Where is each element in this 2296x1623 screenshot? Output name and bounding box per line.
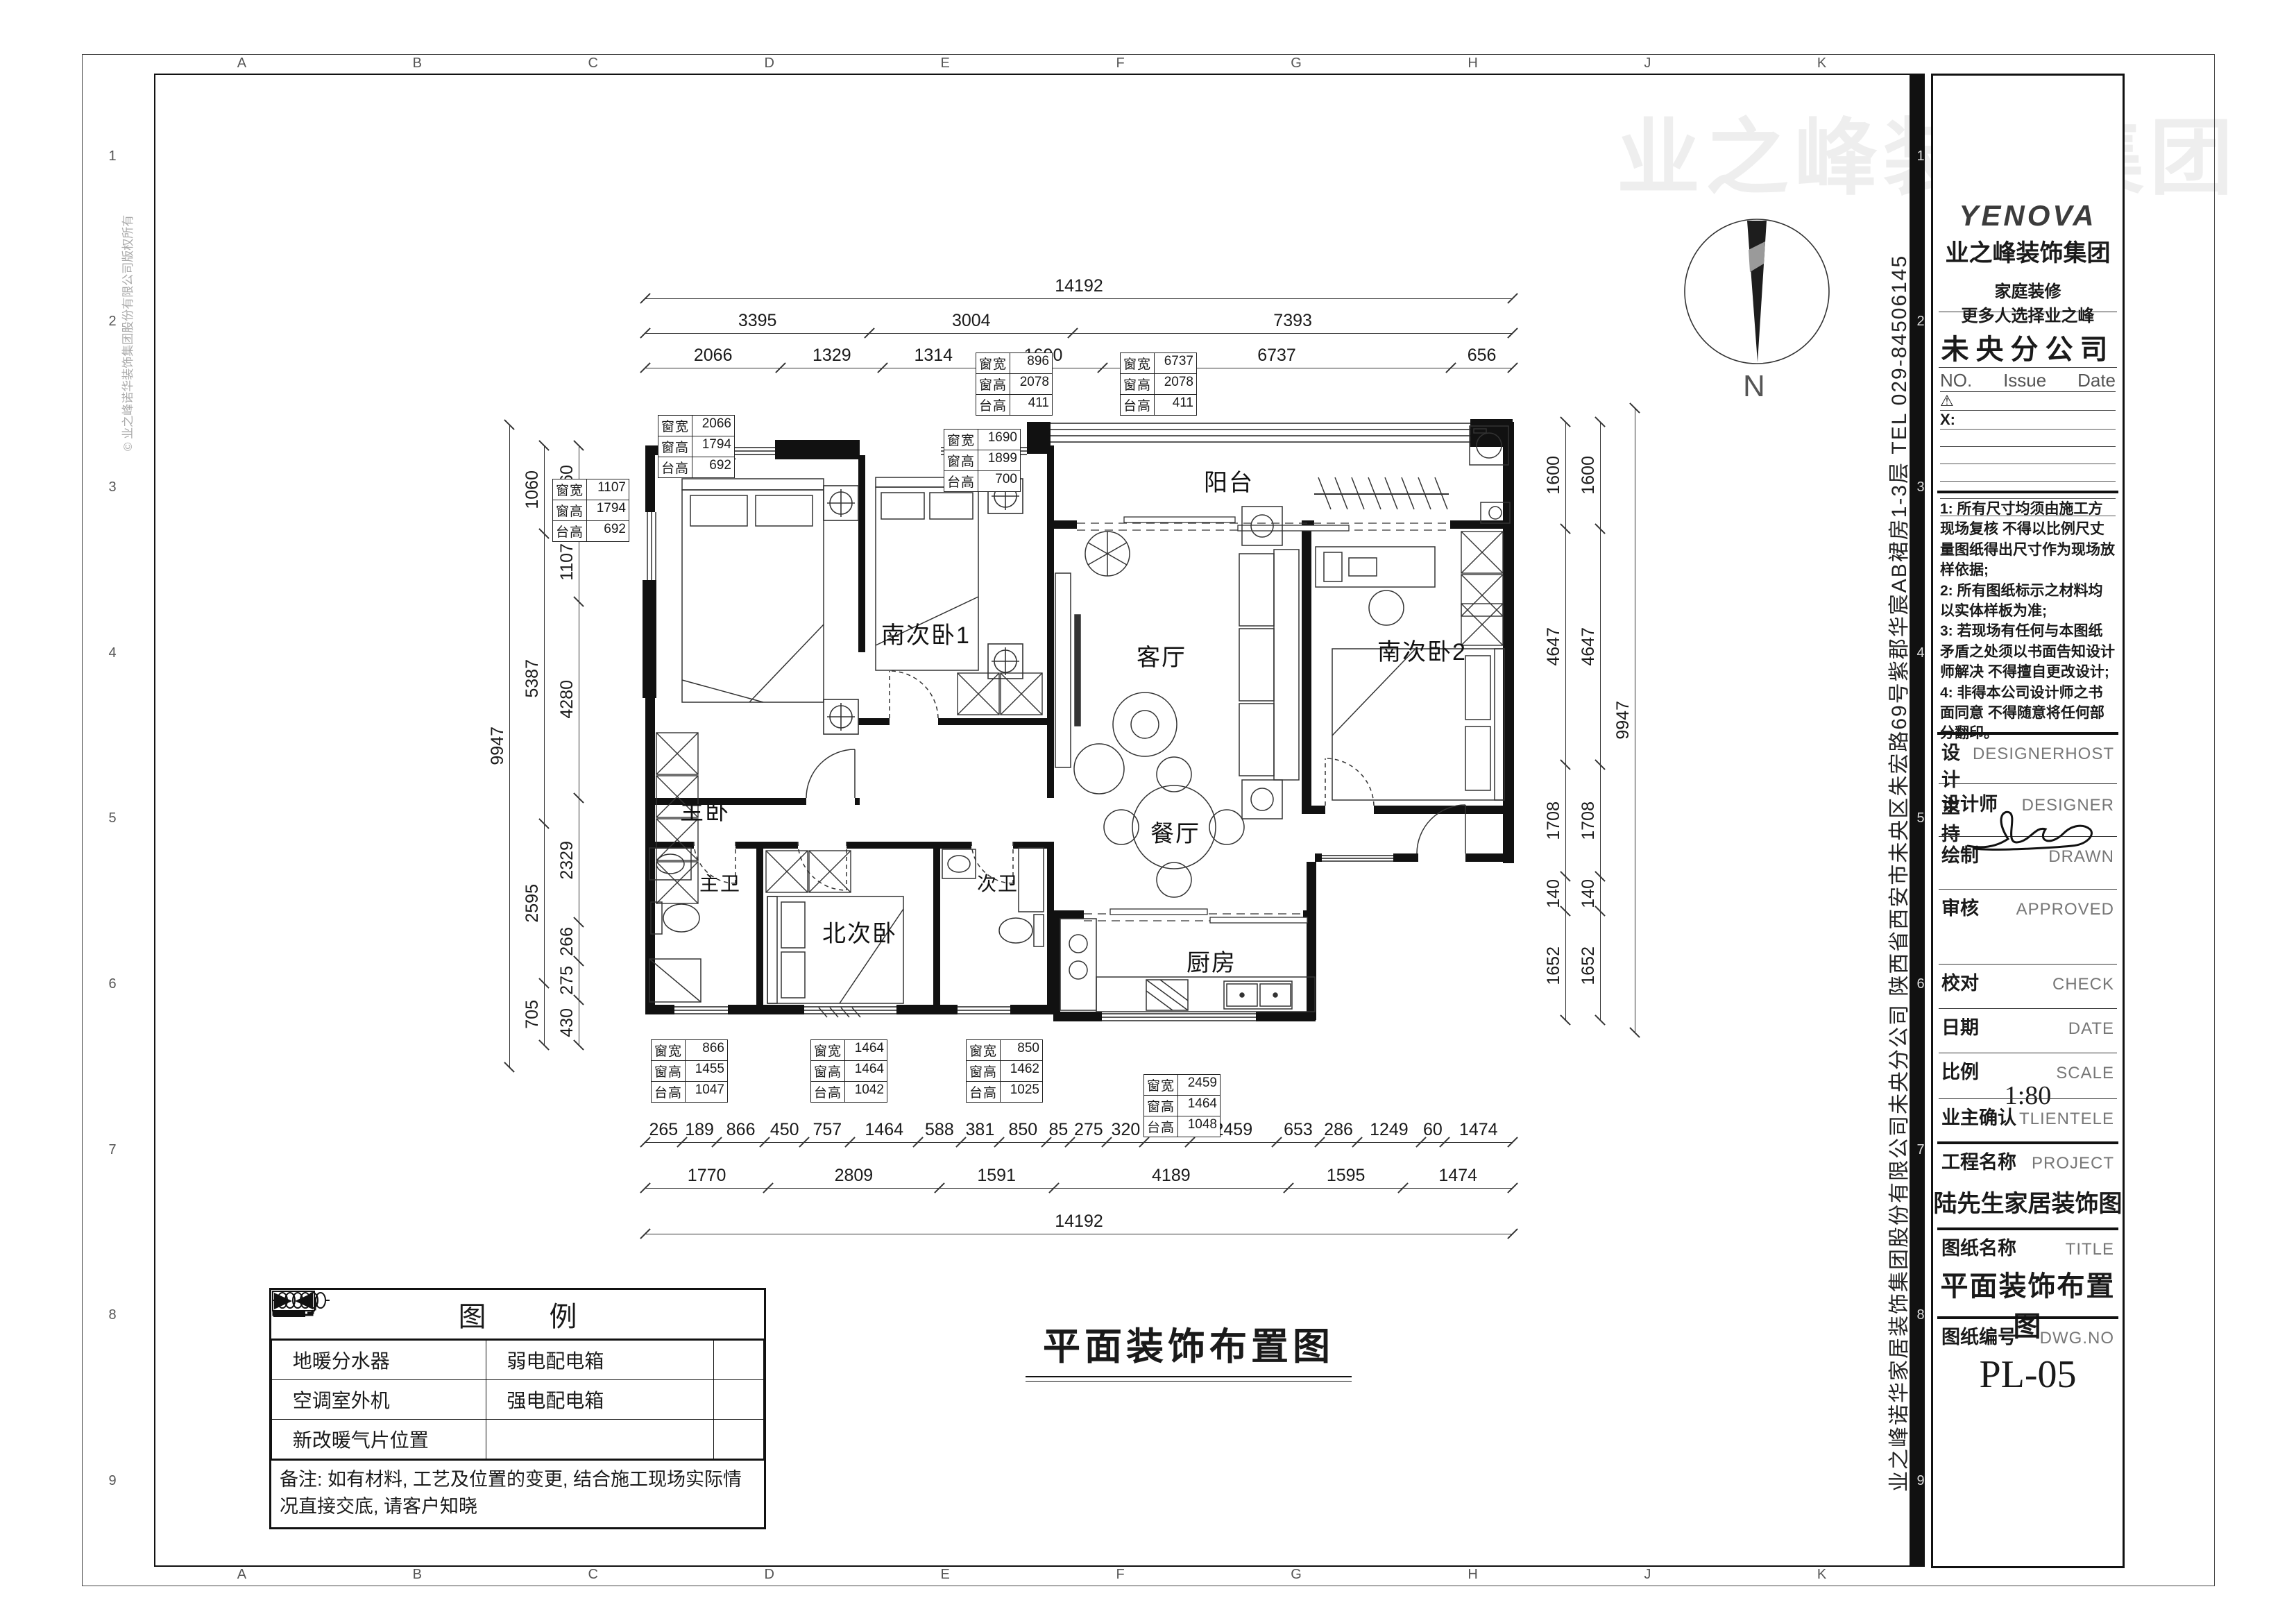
north-compass: [1685, 219, 1829, 364]
window-table-9: 窗宽2459窗高1464台高1048: [1143, 1074, 1221, 1137]
legend-item-label: 弱电配电箱: [507, 1350, 604, 1372]
room-label-north-bed: 北次卧: [822, 915, 897, 949]
sliding-doors: [1077, 517, 1450, 923]
legend-item-label: 地暖分水器: [293, 1350, 390, 1372]
furniture: [649, 426, 1510, 1017]
room-label-master-bath: 主卫: [699, 869, 741, 897]
legend-box: 图 例 地暖分水器 弱电配电箱: [269, 1288, 766, 1529]
legend-item-label: 空调室外机: [293, 1390, 390, 1411]
grid-numbers-right: 123456789: [1912, 74, 1929, 1564]
room-label-south2: 南次卧2: [1377, 633, 1467, 667]
window-table-5: 窗宽1690窗高1899台高700: [944, 429, 1021, 492]
room-label-south1: 南次卧1: [881, 616, 971, 650]
legend-title: 图 例: [271, 1290, 764, 1340]
window-table-6: 窗宽866窗高1455台高1047: [651, 1039, 728, 1103]
room-label-balcony: 阳台: [1204, 464, 1254, 498]
drawing-sheet: 业之峰装饰集团 ABCDEFGHJK ABCDEFGHJK 123456789 …: [0, 0, 2296, 1623]
window-table-7: 窗宽1464窗高1464台高1042: [810, 1039, 887, 1103]
room-label-living: 客厅: [1137, 638, 1187, 672]
window-table-1: 窗宽2066窗高1794台高692: [658, 415, 735, 478]
window-table-8: 窗宽850窗高1462台高1025: [966, 1039, 1043, 1103]
drawing-title: 平面装饰布置图: [1026, 1316, 1352, 1382]
designer-signature: [1954, 806, 2107, 854]
window-table-4: 窗宽6737窗高2078台高411: [1120, 352, 1197, 416]
compass-n-label: N: [1743, 369, 1765, 404]
room-label-second-bath: 次卫: [977, 869, 1019, 897]
title-underline: [1026, 1376, 1352, 1382]
window-table-2: 窗宽1107窗高1794台高692: [552, 479, 629, 542]
room-label-master: 主卧: [680, 792, 730, 826]
company-address-vertical: 业之峰诺华家居装饰集团股份有限公司未央分公司 陕西省西安市未央区朱宏路69号紫郡…: [1882, 187, 1912, 1492]
room-label-kitchen: 厨房: [1187, 944, 1236, 978]
legend-item-label: 强电配电箱: [507, 1390, 604, 1411]
legend-note: 备注: 如有材料, 工艺及位置的变更, 结合施工现场实际情况直接交底, 请客户知…: [271, 1459, 764, 1527]
window-table-3: 窗宽896窗高2078台高411: [976, 352, 1053, 416]
legend-item-label: 新改暖气片位置: [293, 1429, 429, 1451]
room-label-dining: 餐厅: [1150, 815, 1200, 849]
